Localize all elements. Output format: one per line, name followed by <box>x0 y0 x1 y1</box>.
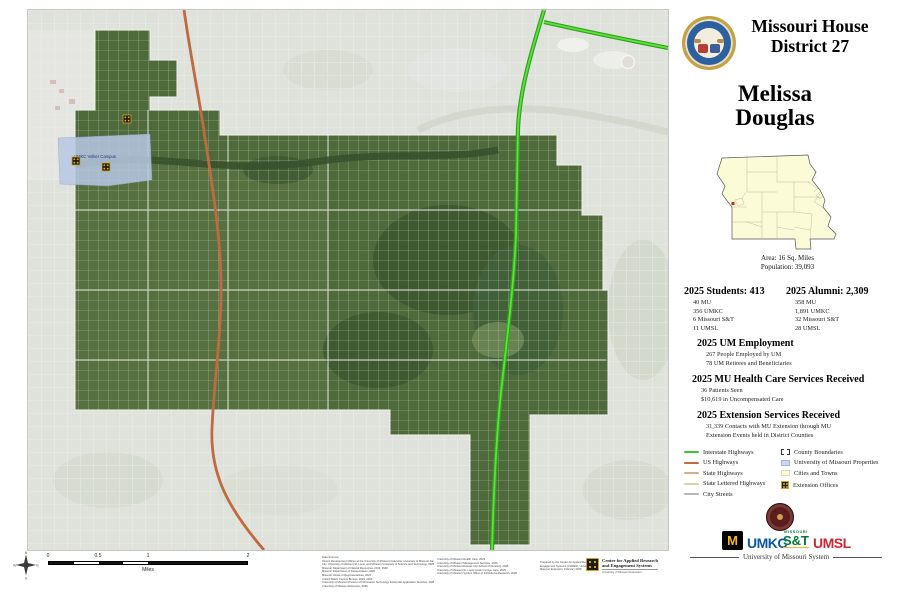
mu-logo: M <box>722 531 743 550</box>
cities-towns-swatch <box>781 470 790 476</box>
state-outline <box>717 155 836 249</box>
title-line-2: District 27 <box>726 36 894 56</box>
cares-logo: Center for Applied Research and Engageme… <box>586 558 676 574</box>
scale-tick: 0 <box>47 553 50 559</box>
missouri-state-inset-map <box>702 152 874 252</box>
county-boundary-swatch <box>781 449 790 455</box>
alumni-stats: 2025 Alumni: 2,309 358 MU 1,891 UMKC 32 … <box>786 286 898 333</box>
scale-tick: 0.5 <box>95 553 102 559</box>
scale-tick: 1 <box>147 553 150 559</box>
scale-unit-label: Miles <box>48 567 248 573</box>
city-street-swatch <box>684 493 699 495</box>
svg-text:S: S <box>25 576 28 580</box>
title-line-1: Missouri House <box>726 16 894 36</box>
representative-name: Melissa Douglas <box>675 82 875 130</box>
health-items: 36 Patients Seen $10,619 in Uncompensate… <box>692 385 892 404</box>
employment-stats: 2025 UM Employment 267 People Employed b… <box>697 338 887 368</box>
extension-office-icon <box>781 481 789 489</box>
health-care-stats: 2025 MU Health Care Services Received 36… <box>692 374 892 404</box>
scale-bar-segments <box>48 561 248 565</box>
page-title: Missouri House District 27 <box>726 16 894 56</box>
satellite-map: UMKC Volker Campus <box>28 10 668 550</box>
svg-text:N: N <box>25 551 28 555</box>
extension-services-stats: 2025 Extension Services Received 31,339 … <box>697 410 892 440</box>
svg-text:E: E <box>36 563 39 567</box>
left-rule <box>690 557 739 558</box>
alumni-items: 358 MU 1,891 UMKC 32 Missouri S&T 28 UMS… <box>786 297 898 333</box>
legend-row-extension-offices: Extension Offices <box>781 479 899 492</box>
cares-subtitle: University of Missouri Extension <box>602 569 658 574</box>
legend-row-city-streets: City Streets <box>684 489 779 500</box>
health-header: 2025 MU Health Care Services Received <box>692 374 892 385</box>
um-system-label-row: University of Missouri System <box>690 553 882 561</box>
prepared-by-note: Prepared by the Center for Applied Resea… <box>540 561 588 572</box>
um-system-label: University of Missouri System <box>743 553 829 561</box>
extension-header: 2025 Extension Services Received <box>697 410 892 421</box>
extension-items: 31,339 Contacts with MU Extension throug… <box>697 421 892 440</box>
students-header: 2025 Students: 413 <box>684 286 784 297</box>
umsl-logo: UMSL <box>813 535 851 551</box>
svg-text:W: W <box>13 563 17 567</box>
legend-row-state-lettered: State Lettered Highways <box>684 479 779 490</box>
legend-areas: County Boundaries University of Missouri… <box>781 447 899 492</box>
state-highway-swatch <box>684 472 699 474</box>
legend-lines: Interstate Highways US Highways State Hi… <box>684 447 779 500</box>
alumni-header: 2025 Alumni: 2,309 <box>786 286 898 297</box>
data-sources-column-2: University of Missouri Health Care, 2025… <box>437 558 537 576</box>
data-sources-column-1: Data Sources: Alumni Development Offices… <box>322 556 434 588</box>
population-label: Population: 39,093 <box>675 263 900 272</box>
legend-row-cities: Cities and Towns <box>781 468 899 479</box>
students-stats: 2025 Students: 413 40 MU 356 UMKC 6 Miss… <box>684 286 784 333</box>
cares-name: and Engagement Systems <box>602 563 658 568</box>
interstate-swatch <box>684 451 699 453</box>
umkc-logo: UMKC <box>747 535 787 551</box>
missouri-sandt-logo: MISSOURI S&T <box>783 530 809 548</box>
employment-header: 2025 UM Employment <box>697 338 887 349</box>
district-27-marker <box>732 202 735 205</box>
legend-row-us-highways: US Highways <box>684 458 779 469</box>
district-map-poster: UMKC Volker Campus <box>0 0 900 600</box>
um-system-seal-icon <box>766 503 794 531</box>
students-items: 40 MU 356 UMKC 6 Missouri S&T 11 UMSL <box>684 297 784 333</box>
legend-row-county: County Boundaries <box>781 447 899 458</box>
employment-items: 267 People Employed by UM 78 UM Retirees… <box>697 349 887 368</box>
us-highway-swatch <box>684 462 699 464</box>
legend-row-interstate: Interstate Highways <box>684 447 779 458</box>
cares-icon <box>586 558 599 571</box>
legend-row-um-properties: University of Missouri Properties <box>781 458 899 469</box>
state-lettered-swatch <box>684 483 699 485</box>
right-rule <box>833 557 882 558</box>
um-properties-swatch <box>781 460 790 466</box>
area-label: Area: 16 Sq. Miles <box>675 254 900 263</box>
scale-tick: 2 <box>247 553 250 559</box>
legend-row-state-highways: State Highways <box>684 468 779 479</box>
compass-rose-icon: N S W E <box>13 550 39 580</box>
scale-bar: 0 0.5 1 2 Miles <box>46 553 256 579</box>
